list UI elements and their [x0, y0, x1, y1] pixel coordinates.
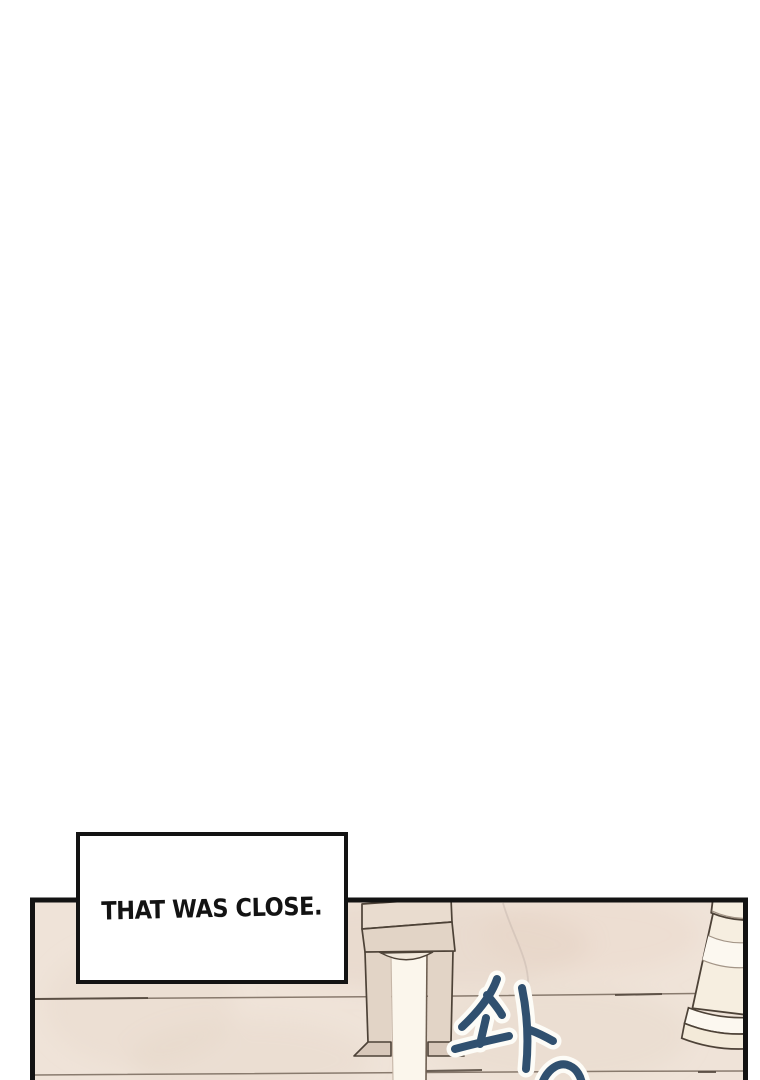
water-stream-right-edge: [426, 953, 427, 1080]
faucet-right-column: [428, 951, 453, 1042]
tile-grout-dark-segment-1: [35, 998, 148, 999]
tile-grout-dark-segment-3: [425, 1070, 482, 1071]
faucet-left-column: [365, 952, 391, 1042]
caption-text: THAT WAS CLOSE.: [101, 891, 322, 925]
tile-grout-dark-segment-2: [615, 994, 662, 995]
water-stream: [391, 953, 427, 1080]
caption-box: THAT WAS CLOSE.: [76, 832, 348, 984]
webtoon-page: THAT WAS CLOSE.: [0, 0, 760, 1080]
